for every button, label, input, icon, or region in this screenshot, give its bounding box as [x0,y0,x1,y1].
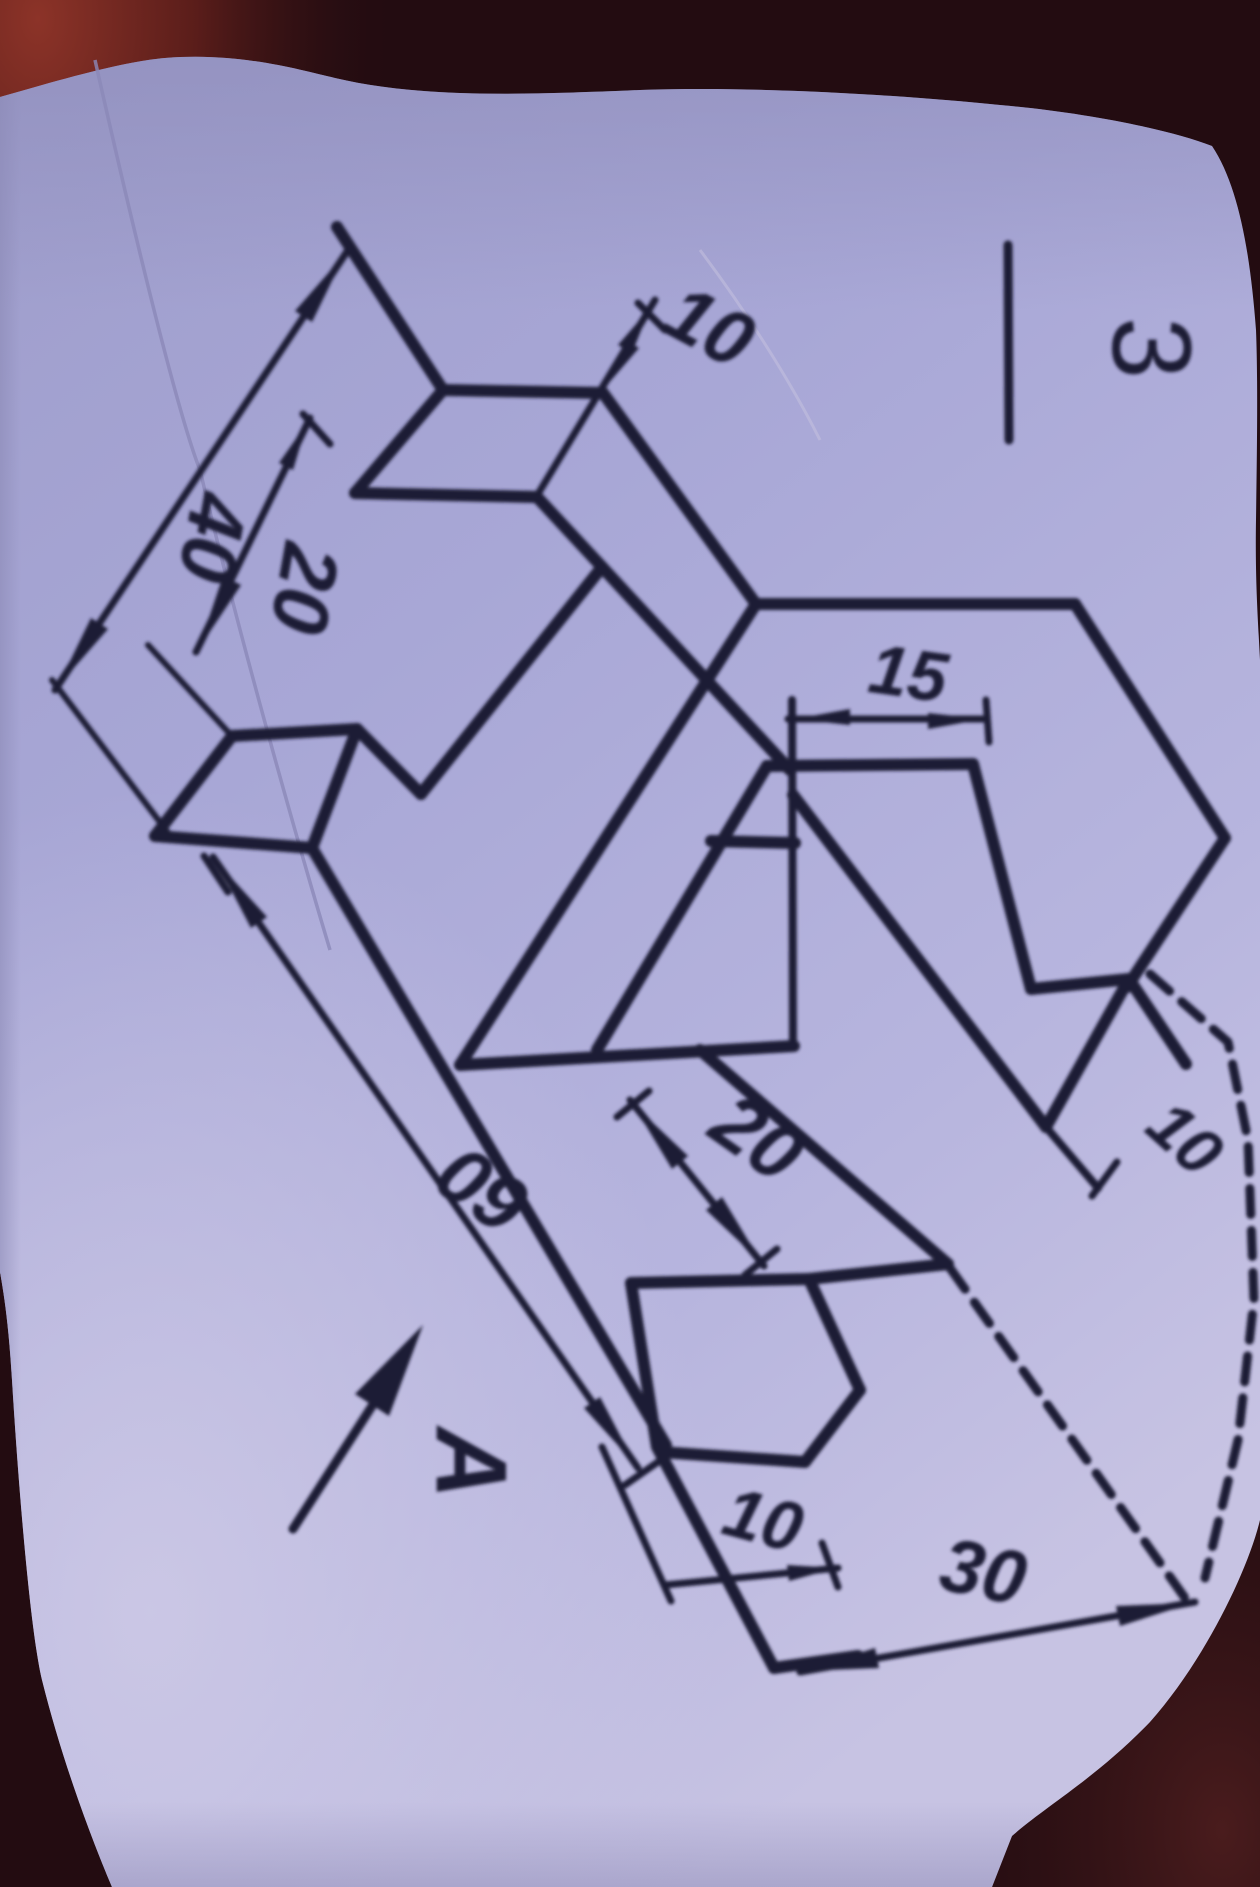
svg-text:A: A [415,1424,527,1499]
svg-text:15: 15 [864,629,953,717]
svg-text:3: 3 [1089,317,1214,379]
svg-text:40: 40 [162,484,265,589]
svg-text:30: 30 [933,1522,1033,1623]
svg-text:20: 20 [254,535,357,640]
